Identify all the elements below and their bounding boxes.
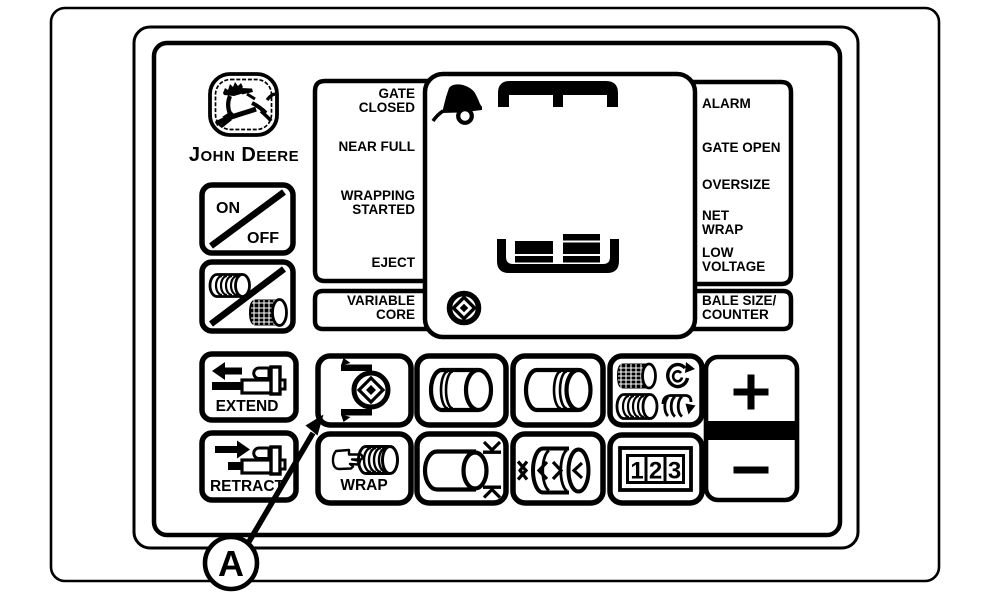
svg-text:VOLTAGE: VOLTAGE [702, 259, 765, 274]
svg-text:CLOSED: CLOSED [359, 100, 416, 115]
svg-text:A: A [218, 543, 244, 584]
svg-text:COUNTER: COUNTER [702, 307, 769, 322]
svg-text:OVERSIZE: OVERSIZE [702, 177, 770, 192]
svg-text:RETRACT: RETRACT [210, 478, 285, 495]
svg-text:EJECT: EJECT [371, 255, 415, 270]
svg-text:OFF: OFF [247, 230, 279, 247]
svg-text:GATE: GATE [379, 86, 416, 101]
svg-text:3: 3 [668, 458, 681, 485]
svg-text:VARIABLE: VARIABLE [347, 293, 415, 308]
svg-text:NEAR FULL: NEAR FULL [339, 139, 416, 154]
svg-text:LOW: LOW [702, 245, 734, 260]
svg-text:NET: NET [702, 208, 730, 223]
svg-text:CORE: CORE [376, 307, 415, 322]
svg-text:WRAP: WRAP [340, 477, 387, 494]
svg-text:1: 1 [630, 458, 643, 485]
svg-text:WRAPPING: WRAPPING [341, 188, 415, 203]
svg-text:BALE SIZE/: BALE SIZE/ [702, 293, 777, 308]
svg-text:JOHN DEERE: JOHN DEERE [189, 144, 299, 166]
svg-text:ALARM: ALARM [702, 96, 751, 111]
svg-text:EXTEND: EXTEND [216, 398, 279, 415]
svg-text:ON: ON [216, 200, 240, 217]
svg-text:STARTED: STARTED [352, 202, 415, 217]
svg-text:WRAP: WRAP [702, 222, 743, 237]
svg-text:GATE OPEN: GATE OPEN [702, 140, 781, 155]
svg-text:2: 2 [649, 458, 662, 485]
